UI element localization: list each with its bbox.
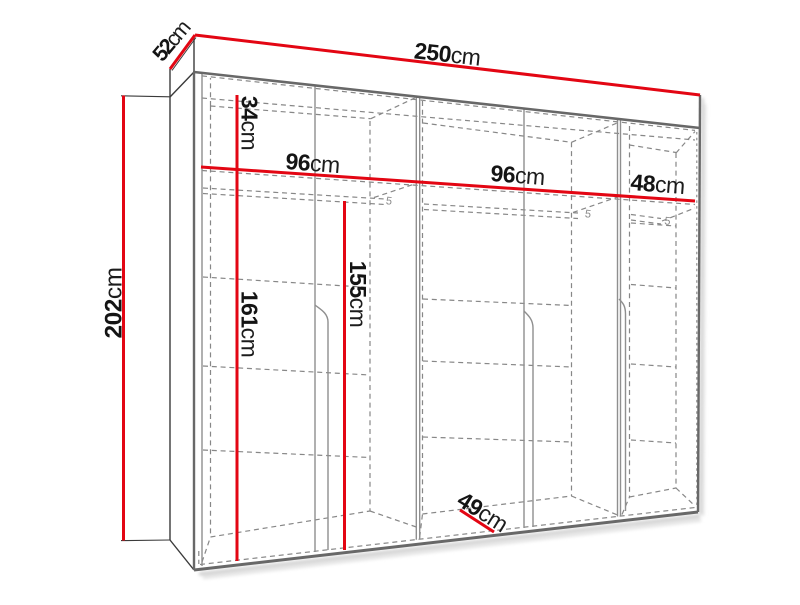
svg-text:48cm: 48cm — [630, 169, 686, 199]
svg-text:34cm: 34cm — [237, 96, 263, 150]
svg-text:161cm: 161cm — [237, 291, 263, 358]
svg-text:202cm: 202cm — [101, 267, 128, 338]
svg-text:96cm: 96cm — [490, 160, 546, 190]
svg-text:155cm: 155cm — [345, 261, 371, 328]
svg-text:96cm: 96cm — [285, 148, 341, 178]
